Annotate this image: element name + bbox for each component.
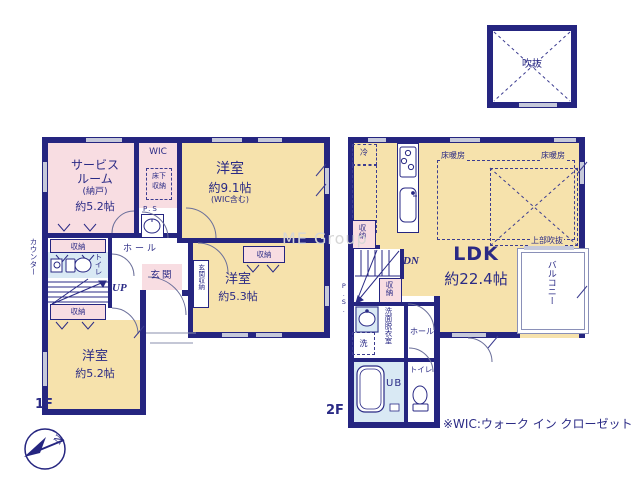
window-segment bbox=[212, 138, 242, 142]
counter-label: カウンター bbox=[29, 238, 38, 310]
window-segment bbox=[452, 333, 486, 337]
heating1-label: 床暖房 bbox=[440, 151, 466, 161]
room52-label: 洋室 約5.2帖 bbox=[63, 349, 127, 380]
wic-note: ※WIC:ウォーク イン クローゼット bbox=[443, 417, 633, 431]
floor2-label: 2F bbox=[326, 403, 344, 419]
fridge-label: 冷 bbox=[360, 148, 368, 158]
window-segment bbox=[222, 333, 248, 337]
ps-label-2f: P.S. bbox=[339, 282, 347, 330]
window-segment bbox=[554, 138, 576, 142]
window-segment bbox=[325, 286, 329, 306]
closet1-label: 収納 bbox=[50, 242, 106, 251]
wic-label: WIC bbox=[139, 147, 177, 158]
floor-plan: 吹抜 bbox=[0, 0, 640, 480]
ub-label: UB bbox=[386, 378, 402, 390]
void-label: 吹抜 bbox=[512, 59, 552, 71]
room91-label: 洋室 約9.1帖 (WIC含む) bbox=[196, 161, 264, 205]
window-segment bbox=[258, 138, 282, 142]
hall1f-label: ホール bbox=[123, 244, 159, 255]
upper-void-zone bbox=[490, 168, 578, 246]
ldk-label: LDK 約22.4帖 bbox=[437, 243, 515, 288]
toilet1f-label: トイレ bbox=[94, 253, 103, 279]
upper-void-label: 上部吹抜 bbox=[530, 236, 564, 246]
window-segment bbox=[86, 138, 122, 142]
closet3-label: 収納 bbox=[243, 250, 285, 259]
closet2-label: 収納 bbox=[50, 307, 106, 316]
window-segment bbox=[368, 138, 386, 142]
window-segment bbox=[519, 103, 557, 107]
washer-label: 洗 bbox=[352, 339, 375, 349]
window-segment bbox=[524, 246, 574, 250]
window-segment bbox=[450, 138, 480, 142]
up-label: UP bbox=[112, 282, 127, 295]
kitchen-counter bbox=[397, 143, 419, 233]
room53-label: 洋室 約5.3帖 bbox=[206, 272, 270, 303]
underfloor-label: 床下収納 bbox=[146, 172, 172, 192]
wall-segment bbox=[108, 238, 112, 308]
compass-n-letter: N bbox=[49, 432, 66, 448]
window-segment bbox=[325, 168, 329, 194]
hall2f-label: ホール bbox=[410, 327, 434, 337]
closet-mid-label: 収納 bbox=[385, 281, 394, 301]
washroom-label: 洗面脱衣室 bbox=[384, 307, 393, 359]
dn-label: DN bbox=[403, 255, 419, 268]
heating2-label: 床暖房 bbox=[540, 151, 566, 161]
wall-segment bbox=[182, 290, 193, 296]
window-segment bbox=[43, 352, 47, 386]
ps-box-1f bbox=[141, 214, 164, 238]
entrance-storage-label: 玄関収納 bbox=[196, 264, 204, 308]
window-segment bbox=[43, 162, 47, 192]
wall-segment bbox=[177, 143, 182, 243]
room-ub bbox=[354, 362, 404, 422]
washbasin-area bbox=[355, 306, 379, 333]
floor1-label: 1F bbox=[35, 397, 53, 413]
window-segment bbox=[580, 162, 584, 184]
service-room-label: サービス ルーム (納戸) 約5.2帖 bbox=[60, 158, 130, 213]
window-segment bbox=[256, 333, 282, 337]
balcony-label: バルコニー bbox=[545, 260, 556, 322]
compass-icon: N bbox=[18, 423, 74, 475]
watermark: ME Group bbox=[282, 229, 368, 248]
toilet2f-label: トイレ bbox=[406, 365, 436, 374]
ps-label-1f: P.S bbox=[143, 205, 159, 213]
wall-segment bbox=[404, 306, 408, 362]
entrance-label: 玄関 bbox=[142, 270, 182, 281]
